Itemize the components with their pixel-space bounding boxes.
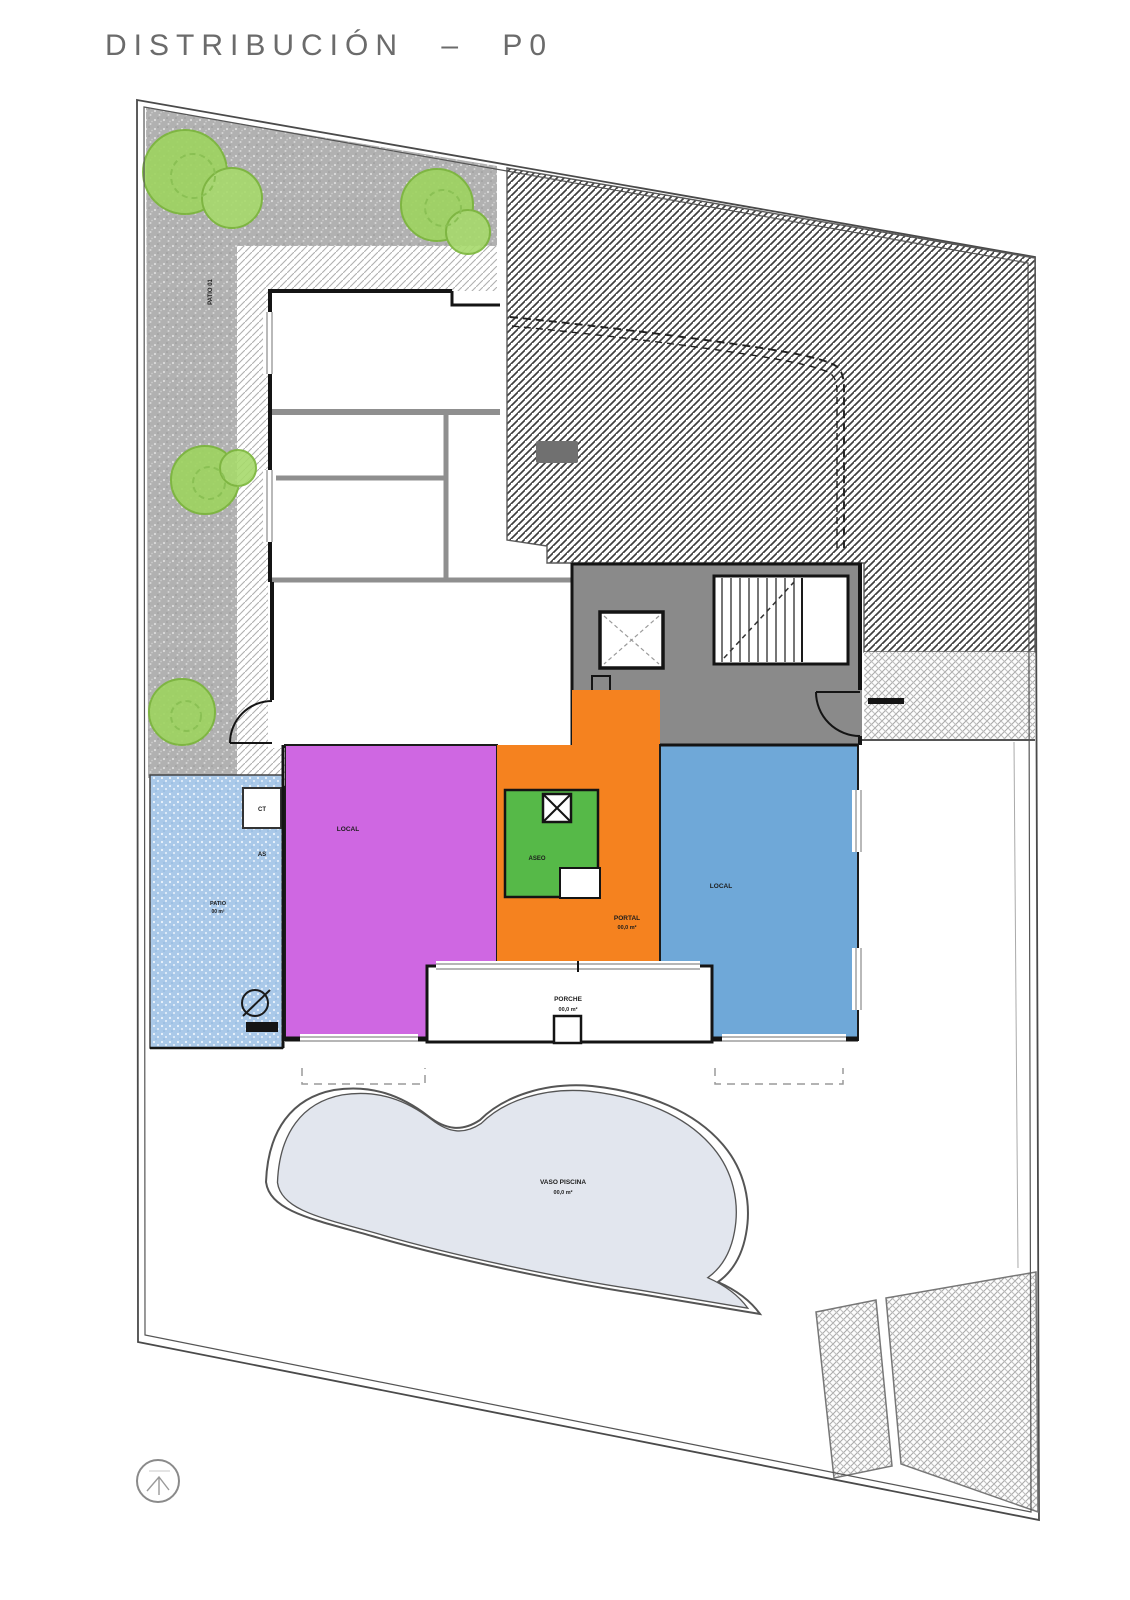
patio-strip-topband	[148, 750, 237, 778]
floor-plan-svg: DISTRIBUCIÓN – P0 PATIO 01	[0, 0, 1130, 1600]
room-area-porche: 00,0 m²	[559, 1006, 578, 1013]
neighbour-weave-patch	[864, 652, 1035, 740]
staircase	[714, 576, 848, 664]
room-label-porche: PORCHE	[554, 996, 582, 1003]
floor-plan-page: DISTRIBUCIÓN – P0 PATIO 01	[0, 0, 1130, 1600]
cupboard-label-as: AS	[258, 852, 266, 858]
cupboard-label-ct: CT	[258, 807, 266, 813]
garden-label: PATIO 01	[208, 278, 214, 304]
room-aseo	[505, 790, 600, 898]
room-label-local-left: LOCAL	[337, 826, 359, 833]
upper-rooms-floor	[268, 291, 497, 582]
north-arrow-icon	[137, 1460, 179, 1502]
pool-area-label: 00,0 m²	[554, 1189, 573, 1196]
chimney-block	[536, 441, 578, 463]
room-label-local-right: LOCAL	[710, 883, 732, 890]
page-title: DISTRIBUCIÓN – P0	[105, 29, 553, 62]
elevator	[600, 612, 663, 668]
room-label-patio-lateral: PATIO	[210, 901, 227, 907]
pool-label: VASO PISCINA	[540, 1179, 586, 1186]
patio-band-top	[237, 246, 497, 291]
room-area-portal: 00,0 m²	[618, 924, 637, 931]
room-area-patio-lateral: 00 m²	[211, 909, 224, 915]
door-threshold-mark	[868, 698, 904, 704]
room-portal-upper	[572, 690, 660, 747]
room-label-portal: PORTAL	[614, 915, 640, 922]
shaft-crossed-box	[543, 794, 571, 822]
room-label-aseo: ASEO	[528, 856, 545, 862]
tree-icon	[149, 679, 215, 745]
